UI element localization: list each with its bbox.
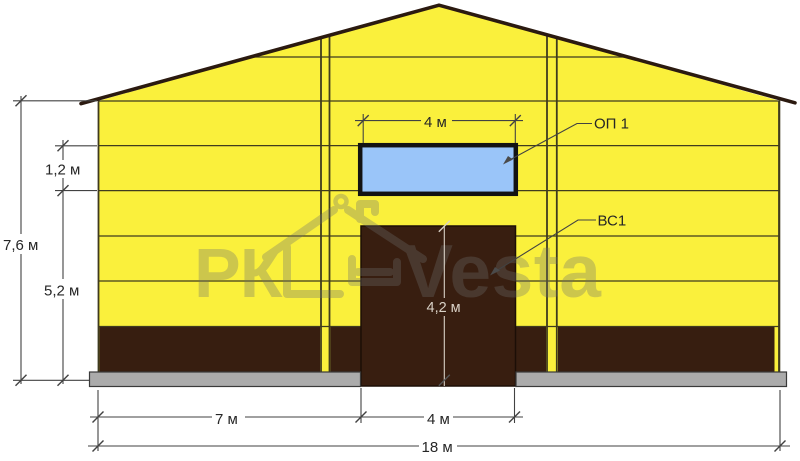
svg-text:4,2 м: 4,2 м: [427, 300, 461, 316]
svg-text:4 м: 4 м: [424, 114, 447, 131]
svg-text:5,2 м: 5,2 м: [44, 283, 79, 300]
svg-text:7 м: 7 м: [215, 411, 238, 428]
svg-text:ОП 1: ОП 1: [594, 116, 629, 133]
svg-text:РК: РК: [194, 234, 283, 312]
svg-text:18 м: 18 м: [422, 439, 453, 456]
svg-text:7,6 м: 7,6 м: [3, 237, 38, 254]
svg-text:ВС1: ВС1: [598, 213, 627, 230]
svg-text:4 м: 4 м: [427, 411, 450, 428]
svg-text:1,2 м: 1,2 м: [45, 162, 80, 179]
